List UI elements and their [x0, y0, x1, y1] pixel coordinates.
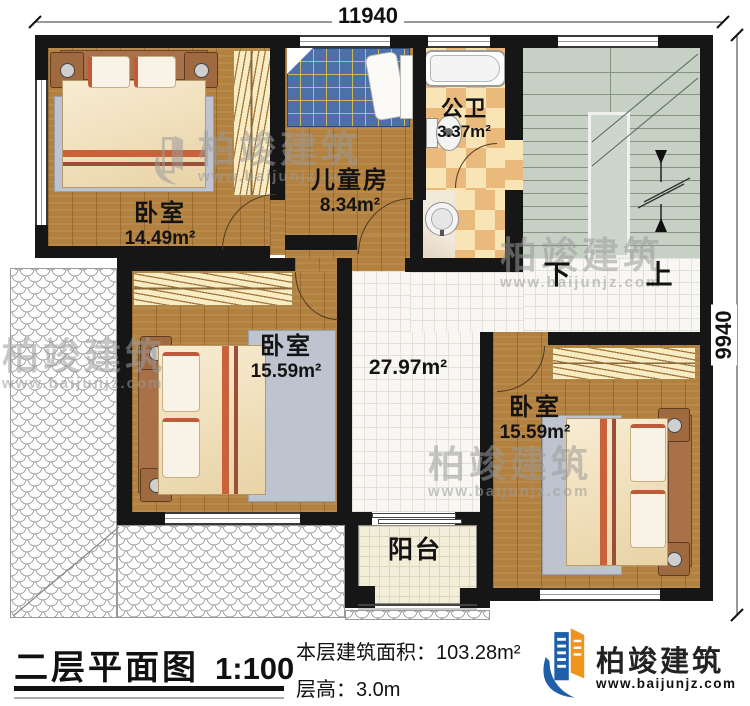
- bed-stripe: [63, 162, 205, 166]
- window: [428, 35, 490, 48]
- stair-landing-line: [610, 48, 611, 115]
- title-underline-thin: [14, 697, 284, 699]
- corridor-floor: [410, 272, 523, 332]
- window: [35, 80, 48, 225]
- bed-stripe: [612, 419, 616, 565]
- bedroom-nw-label: 卧室 14.49m²: [125, 200, 196, 251]
- floor-plan-page: 柏竣建筑 www.baijunjz.com 柏竣建筑 www.baijunjz.…: [0, 0, 750, 706]
- stair-landing-line: [523, 72, 700, 73]
- stair-treads-left: [523, 115, 588, 258]
- dimension-height: 9940: [711, 305, 737, 366]
- room-name: 卧室: [251, 333, 322, 361]
- window: [300, 35, 390, 48]
- floor-height-label: 层高：: [296, 679, 356, 701]
- pillow: [630, 490, 666, 548]
- floor-info-block: 本层建筑面积：103.28m² 层高：3.0m: [296, 636, 521, 702]
- window: [165, 512, 300, 525]
- room-area: 27.97m²: [369, 356, 447, 381]
- stair-up-label: 上: [646, 253, 673, 292]
- bed-stripe: [63, 150, 205, 157]
- bathroom-vestibule-floor: [455, 190, 505, 258]
- room-area: 15.59m²: [500, 422, 571, 444]
- sink-basin: [431, 208, 453, 230]
- bedroom-se-label: 卧室 15.59m²: [500, 394, 571, 445]
- floor-area-value: 103.28m²: [436, 642, 521, 664]
- window: [540, 588, 660, 601]
- lower-roof-bottom: [117, 525, 345, 618]
- bed-stripe: [600, 419, 607, 565]
- hall-label: 27.97m²: [369, 356, 447, 381]
- room-name: 卧室: [125, 200, 196, 228]
- bed-stripe: [234, 346, 238, 494]
- brand-website: www.baijunjz.com: [596, 676, 737, 691]
- wall: [285, 235, 357, 250]
- bathroom-label: 公卫 3.37m²: [437, 96, 491, 142]
- wall: [117, 258, 132, 525]
- kids-bed-sheet: [287, 48, 313, 74]
- room-area: 14.49m²: [125, 228, 196, 250]
- balcony-sliding-door: [378, 519, 462, 524]
- bedroom-w-label: 卧室 15.59m²: [251, 333, 322, 384]
- bed: [62, 80, 206, 188]
- room-area: 15.59m²: [251, 361, 322, 383]
- dimension-width: 11940: [332, 3, 404, 29]
- kids-room-label: 儿童房 8.34m²: [311, 167, 389, 218]
- balcony-label: 阳台: [388, 536, 442, 566]
- sink-tap: [440, 230, 444, 236]
- wall: [505, 35, 523, 140]
- room-name: 儿童房: [311, 167, 389, 195]
- title-underline-thick: [14, 686, 284, 691]
- room-area: 3.37m²: [437, 122, 491, 142]
- wall: [405, 258, 523, 272]
- bedside-table: [400, 55, 413, 119]
- lower-roof-left: [10, 268, 117, 618]
- stair-down-label: 下: [544, 253, 571, 292]
- wall: [413, 48, 426, 200]
- door-threshold: [493, 332, 548, 345]
- pillow: [162, 418, 200, 478]
- pillow: [134, 56, 176, 88]
- brand-logo-icon: [536, 622, 590, 700]
- plan-scale: 1:100: [215, 651, 294, 686]
- pillow: [88, 56, 130, 88]
- wardrobe: [233, 50, 271, 196]
- wall: [337, 258, 352, 512]
- bathroom-door-threshold: [505, 140, 523, 190]
- wardrobe: [133, 272, 293, 306]
- pillow: [162, 352, 200, 412]
- room-name: 公卫: [437, 96, 491, 122]
- balcony-sliding-door: [372, 513, 456, 518]
- brand-name: 柏竣建筑: [596, 638, 724, 680]
- stair-landing-line: [523, 94, 700, 95]
- floor-area-line: 本层建筑面积：103.28m²: [296, 636, 521, 665]
- window: [558, 35, 658, 48]
- plan-title: 二层平面图: [14, 649, 199, 687]
- wall: [480, 332, 493, 601]
- room-area: 8.34m²: [311, 195, 389, 217]
- pillow: [630, 424, 666, 482]
- floor-height-value: 3.0m: [356, 679, 400, 701]
- lower-roof-under-balcony: [345, 610, 490, 620]
- room-name: 卧室: [500, 394, 571, 422]
- bed-stripe: [222, 346, 229, 494]
- wall: [270, 48, 285, 200]
- bathtub-inner: [430, 55, 500, 82]
- floor-area-label: 本层建筑面积：: [296, 642, 436, 664]
- balcony-post: [345, 586, 375, 608]
- floor-height-line: 层高：3.0m: [296, 673, 521, 702]
- wall: [505, 190, 523, 258]
- wall: [548, 332, 700, 345]
- wardrobe: [552, 347, 696, 380]
- wall: [117, 258, 295, 271]
- plan-title-block: 二层平面图1:100: [14, 640, 294, 689]
- stair-void: [588, 112, 630, 258]
- door-threshold: [295, 258, 337, 271]
- stair-treads-right: [630, 115, 700, 258]
